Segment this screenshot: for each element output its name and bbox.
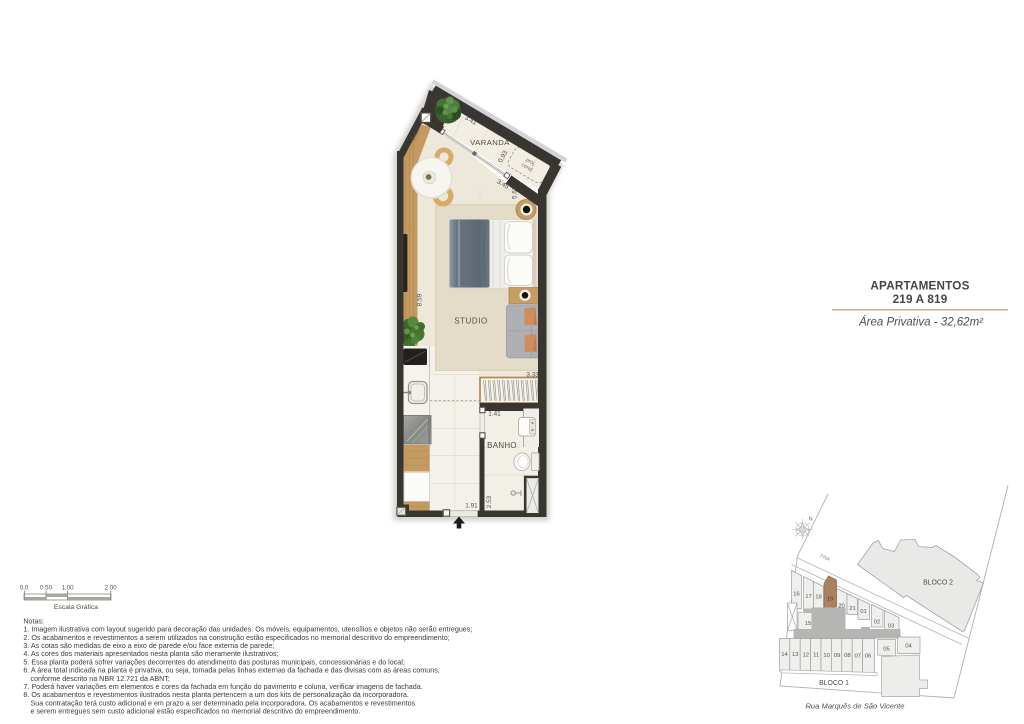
- svg-text:12: 12: [803, 652, 810, 658]
- svg-text:08: 08: [844, 653, 851, 659]
- svg-text:3. As cotas são medidas de ei: 3. As cotas são medidas de eixo a eixo d…: [23, 642, 274, 650]
- svg-text:1.00: 1.00: [61, 585, 74, 592]
- svg-text:conforme descrito na NBR 12.72: conforme descrito na NBR 12.721 da ABNT;: [31, 675, 170, 683]
- svg-text:STUDIO: STUDIO: [454, 317, 488, 326]
- svg-text:7. Poderá haver variações em: 7. Poderá haver variações em elementos e…: [23, 683, 422, 691]
- svg-text:18: 18: [815, 595, 822, 601]
- svg-text:FNA: FNA: [819, 553, 831, 563]
- svg-text:07: 07: [855, 653, 862, 659]
- svg-text:APARTAMENTOS: APARTAMENTOS: [870, 280, 969, 293]
- svg-text:04: 04: [905, 644, 912, 650]
- svg-text:e serem entregues sem custo ad: e serem entregues sem custo adicional es…: [31, 708, 361, 716]
- svg-text:21: 21: [849, 606, 856, 612]
- svg-text:01: 01: [860, 609, 867, 615]
- svg-text:14: 14: [781, 652, 788, 658]
- svg-text:6. A área total indicada na p: 6. A área total indicada na planta é pri…: [23, 667, 439, 675]
- svg-text:219 A 819: 219 A 819: [893, 293, 948, 306]
- svg-text:2.00: 2.00: [105, 585, 118, 592]
- svg-text:Notas:: Notas:: [23, 618, 44, 626]
- svg-text:Sua contratação terá custo adi: Sua contratação terá custo adicional e e…: [31, 699, 416, 707]
- svg-text:BANHO: BANHO: [487, 441, 517, 450]
- svg-text:13: 13: [792, 652, 799, 658]
- svg-text:Área Privativa - 32,62m²: Área Privativa - 32,62m²: [858, 316, 984, 329]
- svg-text:06: 06: [865, 654, 872, 660]
- svg-text:0.50: 0.50: [40, 585, 53, 592]
- svg-text:Escala Gráfica: Escala Gráfica: [54, 604, 98, 611]
- svg-text:1.41: 1.41: [488, 411, 501, 418]
- svg-text:11: 11: [813, 653, 819, 659]
- svg-text:8.59: 8.59: [417, 293, 424, 306]
- svg-text:8. Os acabamentos e revestime: 8. Os acabamentos e revestimentos ilustr…: [23, 691, 408, 699]
- svg-text:17: 17: [805, 594, 812, 600]
- svg-text:Rua Marquês de São Vicente: Rua Marquês de São Vicente: [805, 702, 904, 711]
- svg-text:02: 02: [874, 620, 881, 626]
- svg-text:0.0: 0.0: [20, 585, 29, 592]
- svg-text:10: 10: [823, 653, 830, 659]
- svg-text:2.53: 2.53: [486, 495, 493, 508]
- svg-text:BLOCO 1: BLOCO 1: [819, 680, 849, 687]
- svg-text:1. Imagem ilustrativa com lay: 1. Imagem ilustrativa com layout sugerid…: [23, 626, 472, 634]
- svg-text:1.91: 1.91: [465, 503, 478, 510]
- svg-text:BLOCO 2: BLOCO 2: [923, 580, 953, 587]
- svg-text:20: 20: [838, 604, 845, 610]
- svg-text:3.33: 3.33: [526, 371, 539, 378]
- svg-text:5.67: 5.67: [512, 186, 519, 199]
- svg-text:05: 05: [883, 647, 890, 653]
- svg-text:VARANDA: VARANDA: [470, 138, 510, 147]
- svg-text:03: 03: [888, 624, 895, 630]
- svg-text:5. Essa planta poderá sofrer: 5. Essa planta poderá sofrer variações d…: [23, 658, 404, 666]
- svg-text:09: 09: [834, 653, 841, 659]
- svg-text:19: 19: [827, 597, 834, 603]
- svg-text:4. As cores dos materiais apr: 4. As cores dos materiais apresentados n…: [23, 650, 278, 658]
- svg-text:15: 15: [805, 621, 812, 627]
- svg-text:2. Os acabamentos e revestime: 2. Os acabamentos e revestimentos a sere…: [23, 634, 449, 642]
- svg-text:16: 16: [793, 592, 800, 598]
- svg-text:N: N: [809, 517, 813, 523]
